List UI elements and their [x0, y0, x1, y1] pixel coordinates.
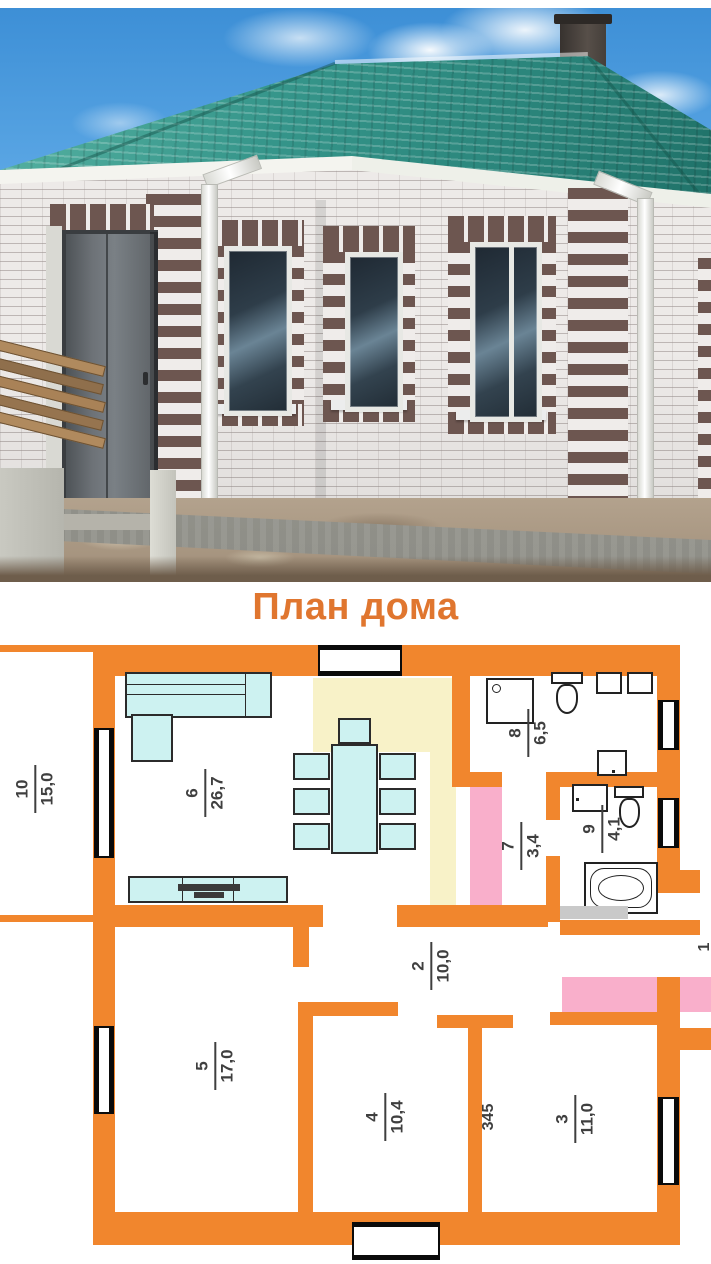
room-number: 6: [183, 788, 202, 797]
wall: [397, 905, 548, 927]
room-area: 17,0: [218, 1049, 237, 1082]
room-label: 10 15,0: [13, 765, 56, 813]
wall: [657, 645, 680, 893]
basin-dot: [576, 798, 579, 801]
fraction-line: [384, 1093, 386, 1141]
shower-drain: [492, 684, 501, 693]
room-area: 15,0: [38, 772, 57, 805]
dining-table: [331, 744, 378, 854]
tv-stand: [128, 876, 288, 903]
room-label: 4 10,4: [363, 1093, 406, 1141]
sofa: [125, 672, 272, 718]
wall: [115, 905, 323, 927]
wall: [298, 1002, 398, 1016]
bath-mat: [560, 906, 628, 919]
room-label: 5 17,0: [193, 1042, 236, 1090]
room-area: 3,4: [524, 834, 543, 858]
wall-dimension-label: 345: [480, 1104, 498, 1131]
wall: [452, 772, 502, 787]
bathtub-basin: [598, 875, 644, 901]
window-symbol: [658, 700, 679, 750]
room-label: 2 10,0: [409, 942, 452, 990]
wall: [546, 772, 560, 820]
fraction-line: [430, 942, 432, 990]
fraction-line: [34, 765, 36, 813]
wall: [550, 1012, 657, 1025]
room-area: 4,1: [605, 817, 624, 841]
window-symbol: [318, 645, 402, 676]
cabinet: [596, 672, 622, 694]
toilet-tank: [551, 672, 583, 684]
dining-chair: [379, 753, 416, 780]
wall: [0, 645, 93, 652]
room-area: 26,7: [208, 776, 227, 809]
sofa-back-line: [127, 694, 245, 695]
dining-chair: [379, 788, 416, 815]
sofa-chaise: [131, 714, 173, 762]
room-number: 9: [580, 824, 599, 833]
sofa-back-line: [127, 684, 245, 685]
window-symbol: [658, 798, 679, 848]
sofa-armrest-line: [245, 674, 246, 716]
dining-chair: [379, 823, 416, 850]
room-number: 3: [553, 1114, 572, 1123]
window-symbol: [352, 1222, 440, 1260]
tv: [178, 884, 240, 891]
tv-base: [194, 892, 224, 898]
room-area: 6,5: [531, 721, 550, 745]
room-number: 10: [13, 780, 32, 799]
wall: [680, 1028, 711, 1050]
door-dot: [612, 770, 615, 773]
wall: [298, 1016, 313, 1212]
room-number: 5: [193, 1061, 212, 1070]
room-area: 10,4: [388, 1100, 407, 1133]
fraction-line: [520, 822, 522, 870]
window-symbol: [94, 1026, 114, 1114]
fraction-line: [204, 769, 206, 817]
wall: [293, 927, 309, 967]
room-label: 7 3,4: [499, 822, 542, 870]
room-label: 8 6,5: [506, 709, 549, 757]
wardrobe: [562, 977, 711, 1012]
room-area: 10,0: [434, 949, 453, 982]
dining-chair: [338, 718, 371, 744]
room-number: 2: [409, 961, 428, 970]
room-area: 11,0: [578, 1103, 597, 1135]
fraction-line: [601, 805, 603, 853]
wall: [560, 920, 700, 935]
toilet-bowl: [556, 684, 578, 714]
room-number: 7: [499, 841, 518, 850]
fraction-line: [574, 1095, 576, 1143]
dining-chair: [293, 788, 330, 815]
wall: [452, 676, 470, 774]
fraction-line: [214, 1042, 216, 1090]
door-leaf-symbol: [597, 750, 627, 776]
wall: [437, 1015, 513, 1028]
room-label: 3 11,0: [553, 1095, 596, 1143]
wardrobe: [470, 787, 502, 907]
window-symbol: [658, 1097, 679, 1185]
room-number: 4: [363, 1112, 382, 1121]
floor-plan: 10 15,0 6 26,7 8 6,5 7 3,4 9 4,1 2 10,0 …: [0, 0, 711, 1264]
dining-chair: [293, 753, 330, 780]
cutoff-room-label: 1: [696, 943, 711, 952]
fraction-line: [527, 709, 529, 757]
wall: [657, 870, 700, 893]
dining-chair: [293, 823, 330, 850]
room-number: 8: [506, 728, 525, 737]
window-symbol: [94, 728, 114, 858]
room-label: 9 4,1: [580, 805, 623, 853]
toilet-tank: [614, 786, 644, 798]
wall: [546, 856, 560, 922]
room-label: 6 26,7: [183, 769, 226, 817]
wall: [0, 915, 93, 922]
cabinet: [627, 672, 653, 694]
